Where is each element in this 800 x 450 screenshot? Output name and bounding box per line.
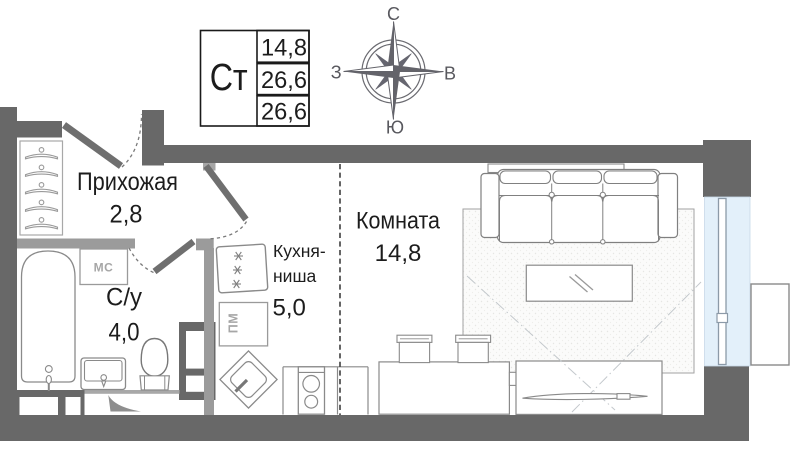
svg-text:МС: МС <box>94 261 114 275</box>
svg-text:Ст: Ст <box>210 57 248 99</box>
svg-text:26,6: 26,6 <box>261 67 307 94</box>
svg-text:Кухня-: Кухня- <box>273 241 326 261</box>
svg-text:14,8: 14,8 <box>261 35 307 62</box>
svg-text:26,6: 26,6 <box>261 99 307 126</box>
svg-text:4,0: 4,0 <box>109 319 140 347</box>
svg-text:В: В <box>444 64 456 84</box>
svg-text:С/у: С/у <box>106 284 142 312</box>
svg-text:С: С <box>387 4 400 24</box>
svg-text:Комната: Комната <box>356 208 441 235</box>
svg-text:2,8: 2,8 <box>110 201 143 229</box>
svg-text:ниша: ниша <box>273 266 316 286</box>
svg-text:Прихожая: Прихожая <box>77 168 178 196</box>
svg-text:ПМ: ПМ <box>227 313 241 333</box>
svg-text:З: З <box>331 63 342 83</box>
svg-text:Ю: Ю <box>386 118 404 138</box>
svg-text:14,8: 14,8 <box>375 240 422 267</box>
svg-text:5,0: 5,0 <box>273 295 306 322</box>
